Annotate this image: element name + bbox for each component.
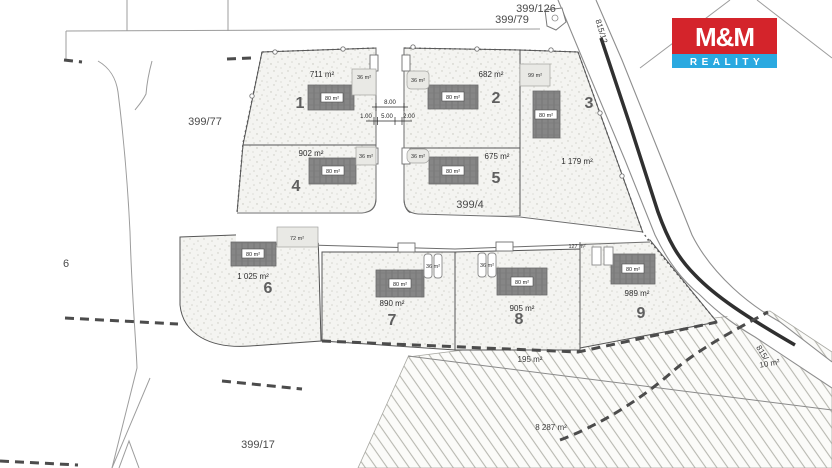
- plot-9-number: 9: [637, 305, 646, 322]
- label-399-4: 399/4: [456, 199, 484, 211]
- parking-9a: [592, 247, 601, 265]
- aux-1-area: 36 m²: [357, 75, 371, 81]
- plot-1-area: 711 m²: [310, 70, 335, 79]
- plot-6-number: 6: [264, 280, 273, 297]
- site-plan-svg: 80 m² 80 m² 80 m² 80 m² 80 m² 80 m² 80 m…: [0, 0, 832, 468]
- plot-1-number: 1: [296, 95, 305, 112]
- house-6-area: 80 m²: [246, 252, 260, 258]
- dim-left: 1.00: [360, 114, 372, 120]
- site-plan-map: 80 m² 80 m² 80 m² 80 m² 80 m² 80 m² 80 m…: [0, 0, 832, 468]
- plot-5-area: 675 m²: [485, 152, 510, 161]
- label-399-17: 399/17: [241, 439, 275, 451]
- house-8-area: 80 m²: [515, 280, 529, 286]
- label-399-77: 399/77: [188, 116, 222, 128]
- house-7-area: 80 m²: [393, 282, 407, 288]
- aux-6-area: 72 m²: [290, 236, 304, 242]
- plot-3-area: 1 179 m²: [561, 157, 593, 166]
- aux-2-area: 36 m²: [411, 78, 425, 84]
- dim-right: 2.00: [403, 114, 415, 120]
- house-4-area: 80 m²: [326, 169, 340, 175]
- aux-7-area: 36 m²: [426, 264, 440, 270]
- plot-6-area: 1 025 m²: [237, 272, 269, 281]
- plot-5-number: 5: [492, 170, 501, 187]
- logo-text-mm: M&M: [695, 22, 754, 52]
- dim-total: 8.00: [384, 100, 396, 106]
- aux-9-area: 127 m²: [568, 244, 585, 250]
- house-3-area: 80 m²: [539, 113, 553, 119]
- house-2-area: 80 m²: [446, 95, 460, 101]
- plot-7-number: 7: [388, 312, 397, 329]
- plot-2-area: 682 m²: [479, 70, 504, 79]
- plot-3-number: 3: [585, 95, 594, 112]
- label-area-8287: 8 287 m²: [535, 423, 567, 432]
- label-6: 6: [63, 258, 69, 270]
- plot-7-area: 890 m²: [380, 299, 405, 308]
- mm-reality-logo: M&M REALITY: [672, 18, 777, 68]
- plot-9-area: 989 m²: [625, 289, 650, 298]
- aux-8-area: 36 m²: [480, 263, 494, 269]
- plot-8-area: 905 m²: [510, 304, 535, 313]
- dim-middle: 5.00: [381, 114, 393, 120]
- label-399-79: 399/79: [495, 14, 529, 26]
- aux-3-area: 99 m²: [528, 73, 542, 79]
- plot-8-shape: [455, 249, 580, 350]
- aux-4-area: 36 m²: [359, 154, 373, 160]
- plot-4-area: 902 m²: [299, 149, 324, 158]
- plot-2-number: 2: [492, 90, 501, 107]
- logo-text-reality: REALITY: [690, 57, 764, 68]
- aux-1: [352, 69, 376, 95]
- aux-5-area: 36 m²: [411, 154, 425, 160]
- house-9-area: 80 m²: [626, 267, 640, 273]
- parking-9b: [604, 247, 613, 265]
- plot-8-number: 8: [515, 311, 524, 328]
- plot-4-number: 4: [292, 178, 301, 195]
- label-area-195: 195 m²: [518, 355, 543, 364]
- house-1-area: 80 m²: [325, 96, 339, 102]
- house-5-area: 80 m²: [446, 169, 460, 175]
